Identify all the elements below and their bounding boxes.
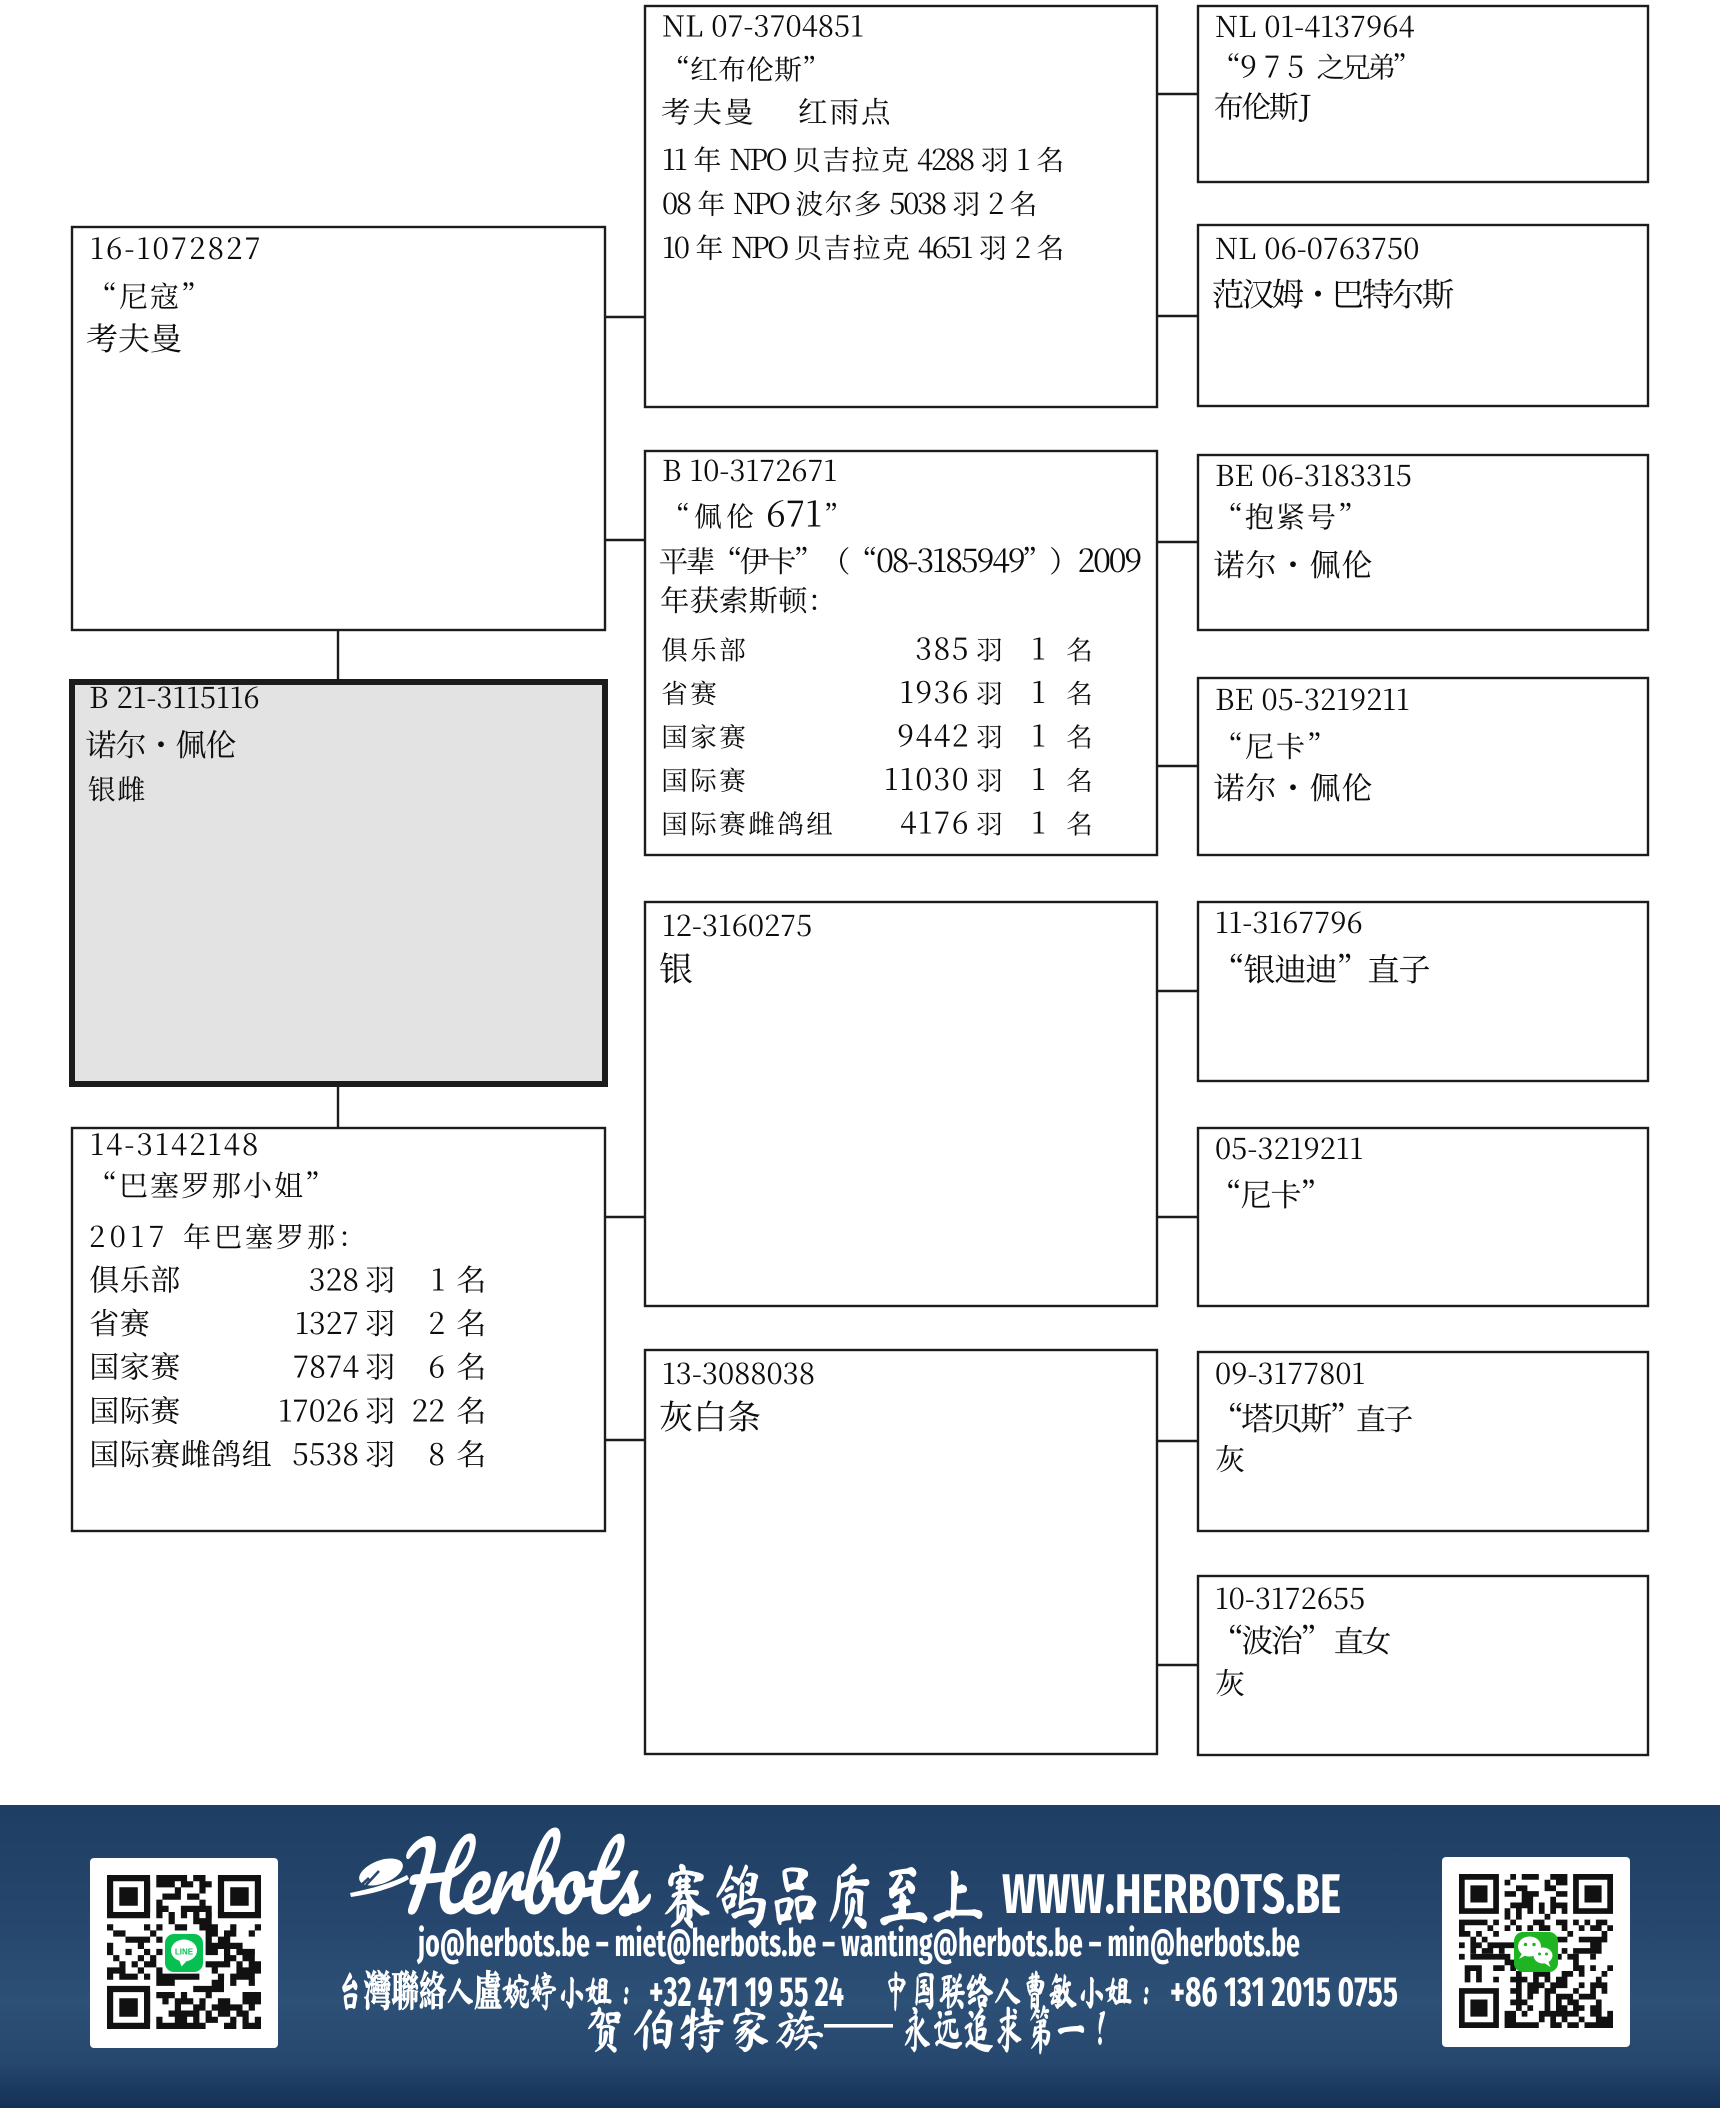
svg-text:LINE: LINE (175, 1948, 194, 1957)
